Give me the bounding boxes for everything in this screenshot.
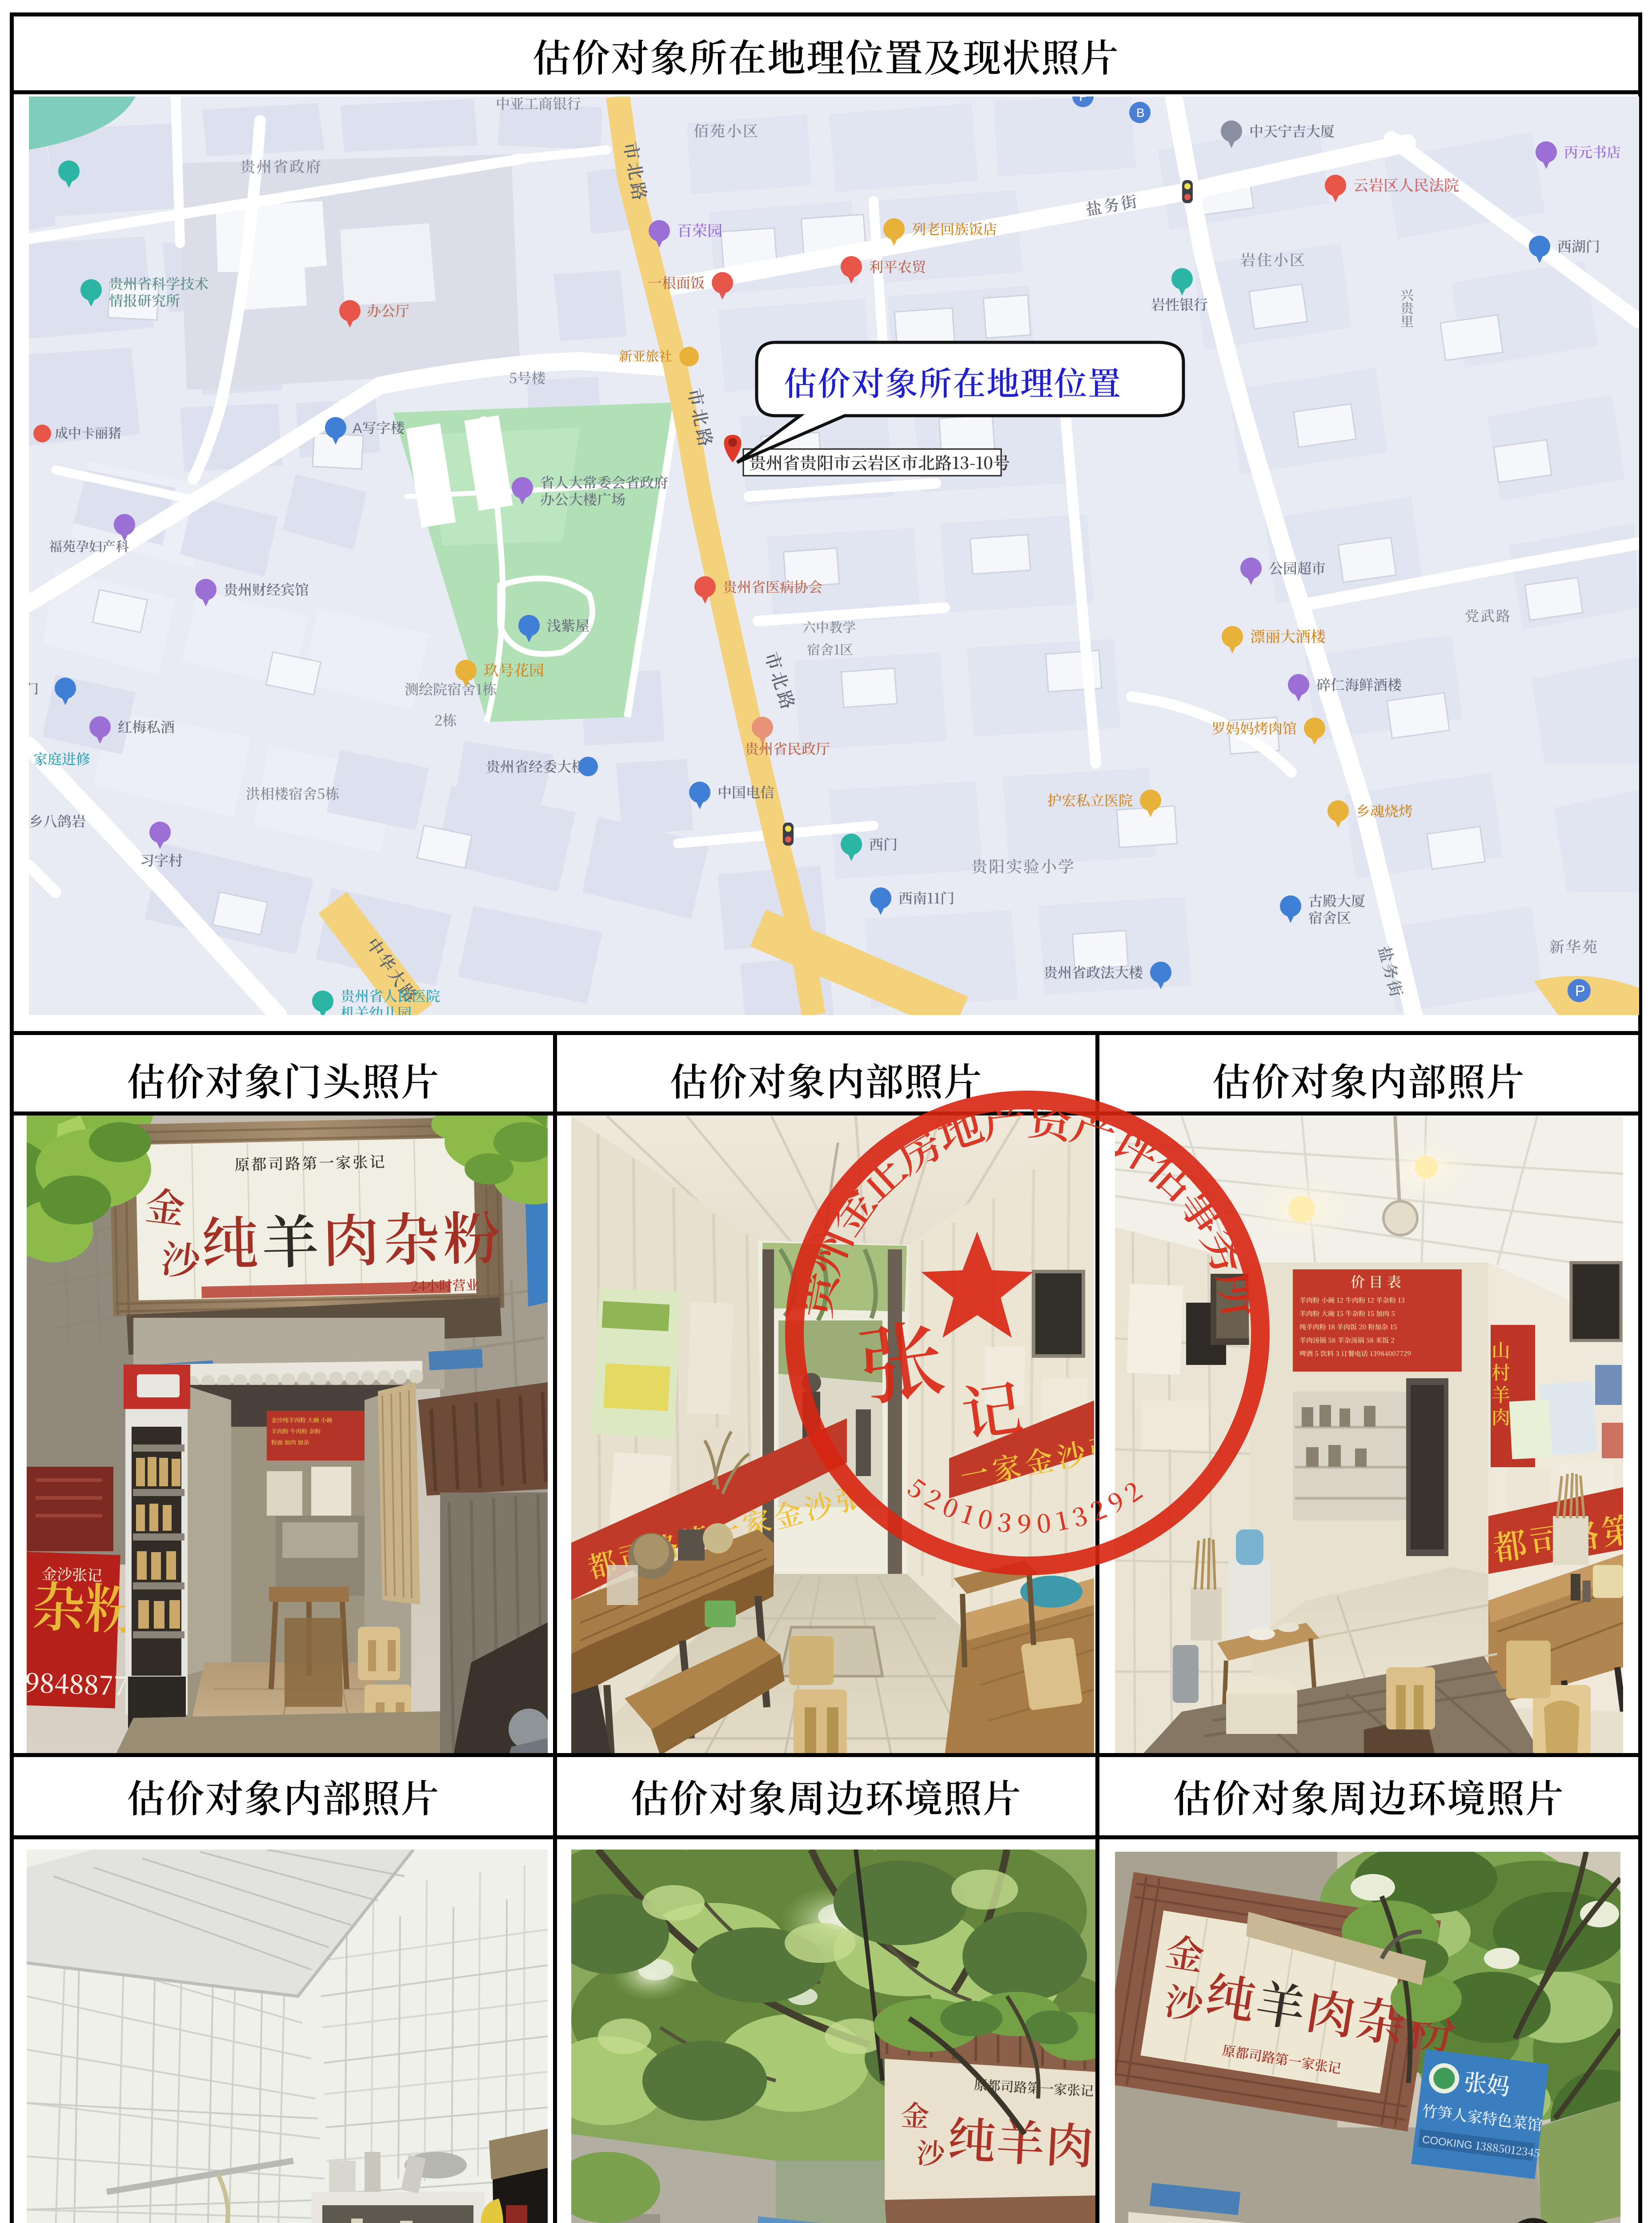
svg-text:啤酒 5 饮料 3 订餐电话 13984007729: 啤酒 5 饮料 3 订餐电话 13984007729 bbox=[1299, 1349, 1411, 1358]
svg-text:羊肉粉 牛肉粉 杂粉: 羊肉粉 牛肉粉 杂粉 bbox=[271, 1427, 321, 1435]
svg-text:P: P bbox=[1575, 979, 1585, 1000]
svg-text:贵州省民政厅: 贵州省民政厅 bbox=[745, 738, 830, 758]
svg-text:情报研究所: 情报研究所 bbox=[109, 290, 180, 310]
svg-text:中国电信: 中国电信 bbox=[718, 782, 774, 802]
svg-text:洪相楼宿舍5栋: 洪相楼宿舍5栋 bbox=[246, 783, 339, 803]
svg-text:办公大楼广场: 办公大楼广场 bbox=[540, 489, 626, 509]
svg-text:24小时营业: 24小时营业 bbox=[410, 1274, 479, 1295]
svg-text:沙: 沙 bbox=[158, 1228, 204, 1288]
svg-text:中亚工商银行: 中亚工商银行 bbox=[496, 96, 581, 113]
svg-text:P: P bbox=[1079, 96, 1088, 105]
svg-text:利平农贸: 利平农贸 bbox=[869, 256, 926, 277]
svg-text:5201039013292: 5201039013292 bbox=[901, 1469, 1154, 1541]
svg-text:羊肉粉 大碗 15 牛杂粉 15 加肉 5: 羊肉粉 大碗 15 牛杂粉 15 加肉 5 bbox=[1299, 1309, 1395, 1318]
svg-text:宿舍1区: 宿舍1区 bbox=[807, 639, 853, 658]
svg-text:岩性银行: 岩性银行 bbox=[1151, 294, 1208, 314]
svg-text:2栋: 2栋 bbox=[434, 710, 457, 730]
svg-text:中天宁吉大厦: 中天宁吉大厦 bbox=[1249, 120, 1335, 141]
svg-text:办公厅: 办公厅 bbox=[367, 300, 409, 321]
svg-text:门: 门 bbox=[29, 678, 39, 698]
svg-text:贵州省政法大楼: 贵州省政法大楼 bbox=[1043, 962, 1143, 982]
svg-text:佰苑小区: 佰苑小区 bbox=[694, 119, 759, 141]
svg-text:乡八鸽岩: 乡八鸽岩 bbox=[29, 811, 86, 831]
svg-text:记: 记 bbox=[956, 1360, 1027, 1454]
svg-text:西南11门: 西南11门 bbox=[898, 887, 954, 908]
svg-text:5号楼: 5号楼 bbox=[509, 367, 545, 388]
svg-text:岩住小区: 岩住小区 bbox=[1240, 248, 1306, 270]
svg-text:碎仁海鲜酒楼: 碎仁海鲜酒楼 bbox=[1316, 674, 1402, 694]
svg-text:贵阳实验小学: 贵阳实验小学 bbox=[971, 855, 1075, 877]
svg-text:估价对象所在地理位置: 估价对象所在地理位置 bbox=[784, 358, 1122, 405]
svg-text:丙元书店: 丙元书店 bbox=[1564, 141, 1621, 162]
svg-text:B: B bbox=[1136, 103, 1145, 121]
svg-text:护宏私立医院: 护宏私立医院 bbox=[1047, 790, 1133, 810]
svg-text:漂丽大酒楼: 漂丽大酒楼 bbox=[1250, 625, 1326, 646]
svg-text:羊肉汤锅 58 羊杂汤锅 58 米饭 2: 羊肉汤锅 58 羊杂汤锅 58 米饭 2 bbox=[1299, 1336, 1395, 1345]
svg-text:金: 金 bbox=[143, 1175, 188, 1235]
svg-text:张妈: 张妈 bbox=[1462, 2063, 1512, 2102]
svg-text:乡魂烧烤: 乡魂烧烤 bbox=[1356, 800, 1413, 821]
svg-text:纯羊肉粉 18 羊肉饭 20 粉加杂 15: 纯羊肉粉 18 羊肉饭 20 粉加杂 15 bbox=[1299, 1322, 1397, 1332]
svg-text:玖号花园: 玖号花园 bbox=[484, 658, 544, 680]
svg-text:纯羊肉杂粉: 纯羊肉杂粉 bbox=[946, 2101, 1095, 2183]
svg-text:新华苑: 新华苑 bbox=[1549, 935, 1599, 957]
svg-text:党武路: 党武路 bbox=[1465, 605, 1512, 626]
svg-text:新亚旅社: 新亚旅社 bbox=[619, 345, 672, 365]
svg-text:西湖门: 西湖门 bbox=[1557, 236, 1600, 256]
svg-text:西门: 西门 bbox=[869, 834, 898, 854]
svg-text:列老回族饭店: 列老回族饭店 bbox=[912, 218, 997, 239]
svg-text:机关幼儿园: 机关幼儿园 bbox=[341, 1002, 412, 1015]
svg-text:贵州省医病协会: 贵州省医病协会 bbox=[723, 576, 822, 597]
svg-text:张: 张 bbox=[850, 1291, 951, 1423]
svg-text:粉面 加肉 加杂: 粉面 加肉 加杂 bbox=[271, 1438, 309, 1446]
svg-text:贵州省经委大楼: 贵州省经委大楼 bbox=[486, 756, 585, 776]
svg-text:罗妈妈烤肉馆: 罗妈妈烤肉馆 bbox=[1211, 718, 1297, 738]
svg-text:测绘院宿舍1栋: 测绘院宿舍1栋 bbox=[405, 678, 497, 699]
svg-text:贵州金正房地产资产评估事务所: 贵州金正房地产资产评估事务所 bbox=[785, 1091, 1270, 1322]
svg-text:福苑孕妇产科: 福苑孕妇产科 bbox=[49, 536, 129, 555]
svg-text:羊肉粉 小碗 12 牛肉粉 12 羊杂粉 13: 羊肉粉 小碗 12 牛肉粉 12 羊杂粉 13 bbox=[1299, 1296, 1405, 1305]
svg-text:云岩区人民法院: 云岩区人民法院 bbox=[1353, 173, 1459, 195]
svg-text:习字村: 习字村 bbox=[140, 850, 183, 870]
svg-text:一根面饭: 一根面饭 bbox=[648, 272, 705, 293]
svg-text:浅紫屋: 浅紫屋 bbox=[547, 615, 589, 635]
svg-text:贵州财经宾馆: 贵州财经宾馆 bbox=[224, 579, 309, 599]
svg-text:纯羊肉杂粉: 纯羊肉杂粉 bbox=[200, 1193, 505, 1281]
svg-text:公园超市: 公园超市 bbox=[1269, 558, 1326, 578]
svg-text:A写字楼: A写字楼 bbox=[353, 417, 405, 437]
svg-text:金沙张记: 金沙张记 bbox=[41, 1562, 103, 1586]
svg-text:六中教学: 六中教学 bbox=[802, 617, 856, 636]
svg-text:原都司路第一家张记: 原都司路第一家张记 bbox=[234, 1150, 387, 1175]
svg-text:兴贵里: 兴贵里 bbox=[1397, 288, 1417, 328]
svg-text:成中卡丽猪: 成中卡丽猪 bbox=[55, 422, 121, 442]
svg-text:宿舍区: 宿舍区 bbox=[1308, 907, 1351, 927]
svg-text:金: 金 bbox=[900, 2093, 930, 2135]
svg-text:家庭进修: 家庭进修 bbox=[33, 748, 90, 769]
svg-text:红梅私酒: 红梅私酒 bbox=[118, 716, 175, 737]
svg-text:金沙纯羊肉粉 大碗 小碗: 金沙纯羊肉粉 大碗 小碗 bbox=[271, 1416, 332, 1424]
svg-text:贵州省政府: 贵州省政府 bbox=[240, 155, 322, 177]
svg-text:百荣园: 百荣园 bbox=[677, 219, 722, 241]
svg-text:价 目 表: 价 目 表 bbox=[1351, 1271, 1401, 1292]
svg-text:贵州省贵阳市云岩区市北路13-10号: 贵州省贵阳市云岩区市北路13-10号 bbox=[749, 449, 1010, 474]
svg-text:沙: 沙 bbox=[915, 2131, 946, 2173]
